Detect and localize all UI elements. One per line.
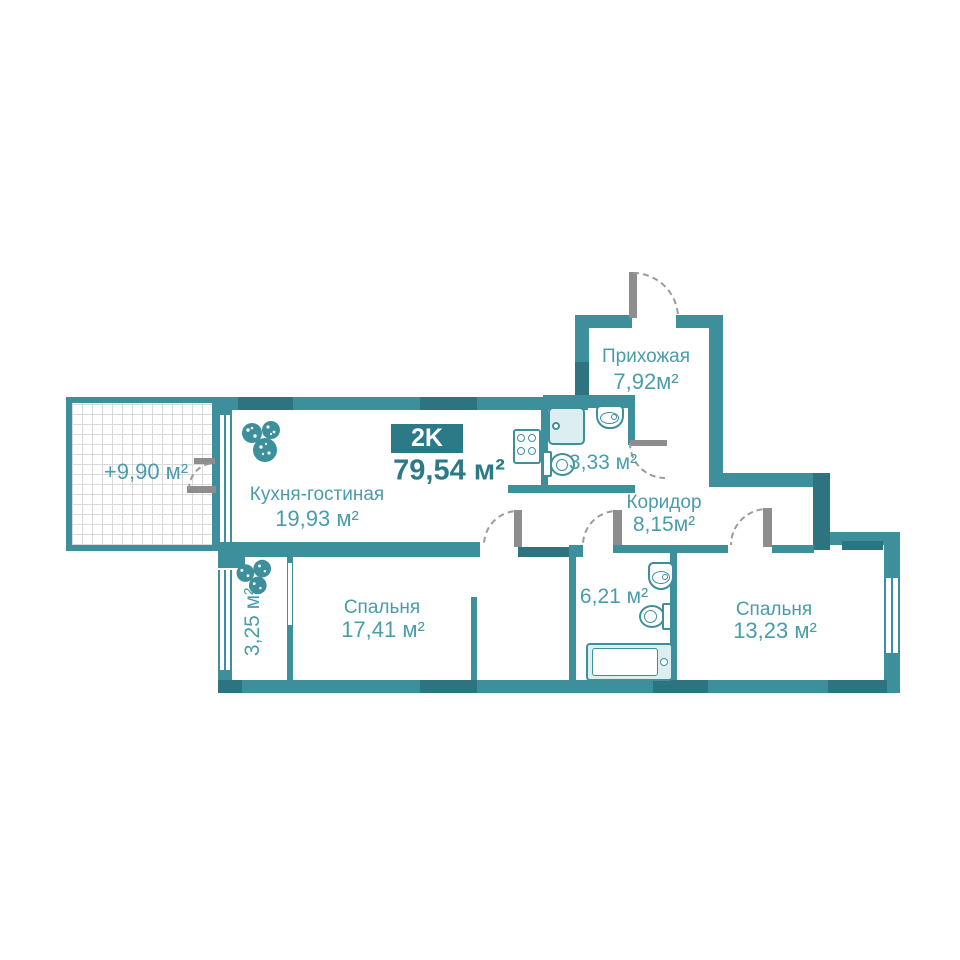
wall <box>709 315 723 487</box>
wall <box>709 473 830 487</box>
wall <box>420 397 477 410</box>
stove-burner-icon <box>528 447 536 455</box>
bedroom-window <box>884 578 900 655</box>
stove-burner-icon <box>528 434 536 442</box>
stove-burner-icon <box>517 434 525 442</box>
stove-burner-icon <box>517 447 525 455</box>
wall <box>653 680 708 693</box>
wall <box>218 680 242 693</box>
area-label-bedroom-2: 13,23 м² <box>733 618 817 644</box>
area-label-terrace: +9,90 м² <box>104 459 188 485</box>
wall <box>471 597 477 685</box>
room-label-kitchen: Кухня-гостиная <box>250 484 384 506</box>
wall <box>420 680 477 693</box>
area-label-kitchen: 19,93 м² <box>275 506 359 532</box>
area-label-hallway: 7,92м² <box>613 369 678 395</box>
wall <box>628 395 635 445</box>
wall <box>218 397 232 417</box>
wall <box>772 545 814 553</box>
area-label-bedroom-1: 17,41 м² <box>341 617 425 643</box>
wall <box>518 547 573 557</box>
room-label-hallway: Прихожая <box>602 346 690 368</box>
room-label-corridor: Коридор <box>626 492 701 514</box>
area-label-bathroom-small: 3,33 м² <box>569 451 637 475</box>
area-label-corridor: 8,15м² <box>633 513 695 537</box>
loggia-window <box>218 570 232 672</box>
wall <box>813 473 830 550</box>
wall <box>842 541 883 550</box>
shower-knob-icon <box>552 422 560 430</box>
wall <box>218 542 480 557</box>
kitchen-window <box>218 415 232 545</box>
wall <box>575 362 589 397</box>
wall <box>287 625 293 685</box>
wall <box>508 485 635 493</box>
wall <box>575 315 589 367</box>
wall <box>884 532 900 580</box>
bathtub-drain-icon <box>660 658 668 666</box>
floor-plan: 2K 79,54 м² Прихожая 7,92м² Кухня-гостин… <box>0 0 960 960</box>
room-label-bedroom-1: Спальня <box>344 597 420 619</box>
wall <box>828 680 887 693</box>
bedroom-loggia-window <box>287 563 293 627</box>
toilet-tank-icon <box>662 603 672 630</box>
toilet-seat-icon <box>556 459 568 471</box>
area-label-bathroom-large: 6,21 м² <box>580 585 648 609</box>
sink-drain-icon <box>662 574 668 580</box>
toilet-seat-icon <box>644 610 657 623</box>
bathtub-basin-icon <box>592 648 658 676</box>
total-area-label: 79,54 м² <box>393 455 505 488</box>
sink-drain-icon <box>611 414 617 420</box>
plant-icon <box>238 420 290 470</box>
apartment-type-badge: 2K <box>391 424 463 453</box>
wall <box>218 680 900 693</box>
wall <box>569 551 576 685</box>
area-label-loggia: 3,25 м² <box>241 588 265 656</box>
wall <box>238 397 293 410</box>
